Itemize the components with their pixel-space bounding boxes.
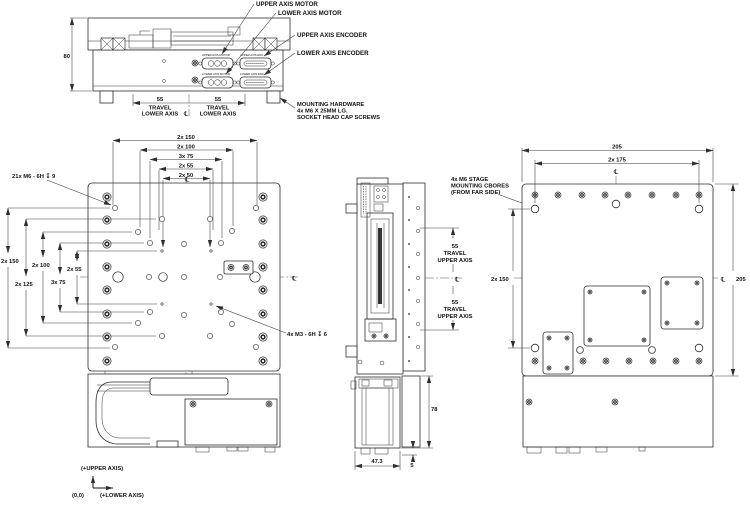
upper-axis-motor-connector [199, 58, 237, 69]
svg-text:55: 55 [452, 244, 459, 250]
svg-text:TRAVEL: TRAVEL [444, 307, 467, 313]
svg-text:2x 175: 2x 175 [608, 158, 627, 164]
svg-text:SOCKET HEAD CAP SCREWS: SOCKET HEAD CAP SCREWS [297, 115, 380, 121]
svg-text:UPPER AXIS ENCODER: UPPER AXIS ENCODER [297, 32, 367, 39]
dim-side-travel: 55 TRAVEL UPPER AXIS ℄ 55 TRAVEL UPPER A… [420, 228, 473, 330]
front-view: UPPER AXIS MOTOR UPPER AXIS ENC. LOWER A… [64, 1, 381, 121]
svg-text:21x M6 - 6H ↧ 9: 21x M6 - 6H ↧ 9 [12, 173, 56, 180]
svg-text:(FROM FAR SIDE): (FROM FAR SIDE) [451, 190, 500, 196]
svg-text:2x 150: 2x 150 [177, 135, 195, 141]
svg-text:55: 55 [215, 97, 222, 103]
svg-text:3x 75: 3x 75 [51, 280, 66, 286]
dim-front-travel: 55 TRAVEL LOWER AXIS 55 TRAVEL LOWER AXI… [133, 94, 245, 118]
rear-base-connectors [527, 447, 645, 453]
svg-text:4x M6 X 25MM LG.: 4x M6 X 25MM LG. [297, 109, 348, 115]
svg-text:LOWER AXIS ENCODER: LOWER AXIS ENCODER [297, 50, 369, 57]
svg-text:MOUNTING HARDWARE: MOUNTING HARDWARE [297, 102, 364, 108]
svg-text:47.3: 47.3 [371, 459, 383, 465]
svg-text:LOWER AXIS: LOWER AXIS [142, 112, 179, 118]
centerline-symbol: ℄ [455, 276, 460, 284]
svg-text:LOWER AXIS MOTOR: LOWER AXIS MOTOR [278, 10, 342, 17]
centerline-symbol: ℄ [614, 168, 619, 176]
callout-stage-mounting-cbores: 4x M6 STAGE MOUNTING CBORES (FROM FAR SI… [451, 177, 530, 206]
svg-text:2x 100: 2x 100 [32, 263, 50, 269]
connector-label-upper-motor: UPPER AXIS MOTOR [202, 53, 230, 57]
rear-right-cover-plate [661, 277, 703, 329]
plan-base-connectors [196, 447, 275, 452]
axis-label-upper: (+UPPER AXIS) [81, 466, 123, 472]
svg-text:2x 100: 2x 100 [177, 145, 195, 151]
svg-text:78: 78 [431, 407, 438, 413]
svg-text:55: 55 [452, 300, 459, 306]
svg-text:4x M6 STAGE: 4x M6 STAGE [451, 177, 488, 183]
stage-drawing: UPPER AXIS MOTOR UPPER AXIS ENC. LOWER A… [0, 0, 750, 506]
rear-view: 205 2x 175 ℄ 2x 150 ℄ 205 [491, 145, 746, 454]
axis-legend: (+UPPER AXIS) (0,0) (+LOWER AXIS) [72, 466, 144, 499]
callout-mounting-hardware: MOUNTING HARDWARE 4x M6 X 25MM LG. SOCKE… [280, 98, 380, 121]
upper-axis-encoder-connector [237, 58, 275, 69]
rear-center-cover-plate [584, 286, 650, 346]
rear-base [523, 376, 713, 453]
dim-rear-205-right: 205 [715, 184, 746, 376]
axis-label-lower: (+LOWER AXIS) [100, 493, 144, 499]
axis-label-origin: (0,0) [72, 493, 84, 499]
svg-text:55: 55 [157, 97, 164, 103]
svg-text:UPPER AXIS: UPPER AXIS [438, 258, 473, 264]
svg-text:LOWER AXIS: LOWER AXIS [200, 112, 237, 118]
svg-text:2x 55: 2x 55 [67, 267, 82, 273]
svg-text:4x M3 - 6H ↧ 6: 4x M3 - 6H ↧ 6 [287, 331, 328, 338]
svg-text:2x 150: 2x 150 [1, 259, 19, 265]
svg-text:80: 80 [64, 54, 70, 60]
plan-limit-block [224, 261, 253, 274]
svg-text:UPPER AXIS MOTOR: UPPER AXIS MOTOR [256, 1, 318, 8]
svg-text:TRAVEL: TRAVEL [444, 251, 467, 257]
svg-text:2x 125: 2x 125 [15, 282, 34, 288]
centerline-symbol: ℄ [292, 275, 297, 283]
svg-text:205: 205 [612, 145, 622, 151]
side-plate-edge [403, 183, 425, 371]
rear-small-cover-plate [543, 332, 573, 374]
svg-text:205: 205 [736, 277, 746, 283]
side-view: 55 TRAVEL UPPER AXIS ℄ 55 TRAVEL UPPER A… [346, 177, 530, 470]
lower-axis-motor-connector [199, 77, 237, 88]
svg-text:MOUNTING CBORES: MOUNTING CBORES [451, 184, 509, 190]
centerline-symbol: ℄ [721, 276, 726, 284]
svg-text:2x 150: 2x 150 [491, 277, 509, 283]
connector-label-upper-enc: UPPER AXIS ENC. [240, 53, 264, 57]
side-lower-housing [351, 376, 420, 454]
svg-text:3x 75: 3x 75 [179, 154, 194, 160]
svg-text:UPPER AXIS: UPPER AXIS [438, 314, 473, 320]
foot-left [100, 91, 113, 103]
motor-cover-plate [185, 399, 277, 445]
centerline-symbol: ℄ [184, 110, 189, 118]
foot-right [267, 91, 280, 103]
side-carriage [346, 178, 403, 374]
connector-label-lower-enc: LOWER AXIS ENC. [240, 72, 265, 76]
plan-view: 2x 150 2x 100 3x 75 2x 55 2x 50 ℄ 2x 150… [1, 135, 328, 452]
svg-text:2x 55: 2x 55 [179, 164, 194, 170]
lower-axis-encoder-connector [237, 77, 275, 88]
plan-base [88, 371, 280, 452]
technical-drawing-canvas: UPPER AXIS MOTOR UPPER AXIS ENC. LOWER A… [0, 0, 750, 506]
svg-text:5: 5 [410, 463, 414, 469]
